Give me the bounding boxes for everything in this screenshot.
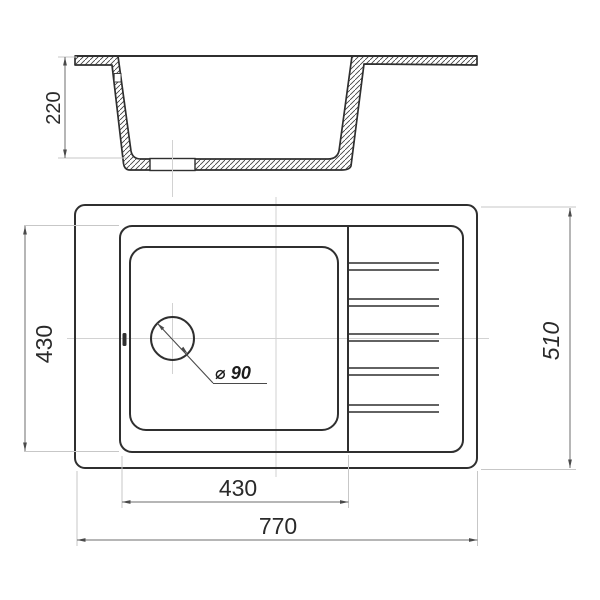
section-material-profile bbox=[75, 56, 477, 170]
drainboard-ribs bbox=[349, 263, 439, 412]
arrowhead-down bbox=[63, 150, 67, 159]
arrowhead-left bbox=[77, 538, 86, 542]
dimension-overall-height: 510 bbox=[481, 207, 576, 470]
dimension-label-overall-width: 770 bbox=[259, 513, 297, 539]
drawing-canvas: 220 bbox=[0, 0, 600, 600]
dimension-overall-width: 770 bbox=[77, 471, 478, 546]
drain-diameter-label: ⌀ 90 bbox=[215, 363, 251, 383]
arrowhead-up bbox=[568, 208, 572, 217]
drain-hole: ⌀ 90 bbox=[151, 303, 267, 384]
arrowhead-up bbox=[23, 226, 27, 235]
plan-view: ⌀ 90 430 510 430 bbox=[23, 197, 576, 546]
section-rim-notch bbox=[114, 74, 121, 83]
arrowhead-right bbox=[340, 500, 349, 504]
arrowhead-left bbox=[122, 500, 131, 504]
drain-diameter-leader bbox=[157, 323, 213, 383]
section-view: 220 bbox=[43, 56, 477, 197]
sink-technical-drawing: 220 bbox=[0, 0, 600, 600]
faucet-hole-tick bbox=[123, 333, 127, 346]
dimension-label-bowl-width: 430 bbox=[219, 475, 257, 501]
arrowhead-down bbox=[23, 443, 27, 452]
dimension-label-bowl-height: 430 bbox=[31, 325, 57, 363]
dimension-label-depth: 220 bbox=[43, 91, 65, 124]
arrowhead-right bbox=[469, 538, 478, 542]
dimension-label-overall-height: 510 bbox=[538, 322, 564, 361]
arrowhead-up bbox=[63, 57, 67, 66]
dimension-bowl-width: 430 bbox=[122, 455, 349, 508]
arrowhead-down bbox=[568, 460, 572, 469]
